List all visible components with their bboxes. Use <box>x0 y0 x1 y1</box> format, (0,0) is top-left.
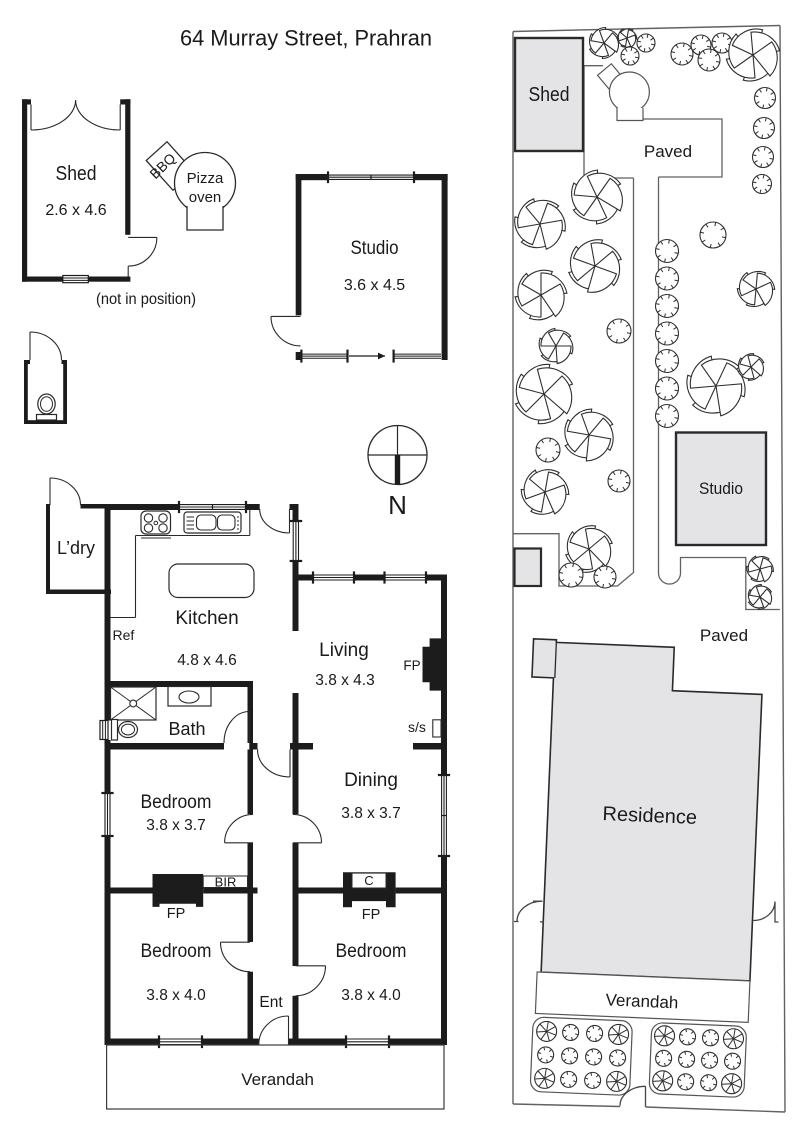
svg-text:Bedroom: Bedroom <box>336 941 407 962</box>
svg-text:Verandah: Verandah <box>241 1070 314 1089</box>
svg-text:(not in position): (not in position) <box>96 291 196 308</box>
svg-text:4.8 x 4.6: 4.8 x 4.6 <box>177 652 236 669</box>
svg-text:3.8 x 3.7: 3.8 x 3.7 <box>146 817 205 834</box>
svg-text:Dining: Dining <box>344 770 398 791</box>
svg-text:Residence: Residence <box>602 803 697 829</box>
svg-text:Living: Living <box>319 640 369 661</box>
svg-text:s/s: s/s <box>408 719 426 735</box>
svg-text:BIR: BIR <box>215 874 237 889</box>
svg-text:Shed: Shed <box>529 84 570 106</box>
svg-text:3.8 x 4.0: 3.8 x 4.0 <box>146 987 206 1004</box>
svg-text:3.8 x 4.0: 3.8 x 4.0 <box>341 987 401 1004</box>
svg-text:3.8 x 4.3: 3.8 x 4.3 <box>315 672 374 689</box>
svg-text:Ref: Ref <box>113 627 135 643</box>
svg-text:Paved: Paved <box>644 142 692 161</box>
svg-text:2.6 x 4.6: 2.6 x 4.6 <box>45 202 106 219</box>
svg-text:Kitchen: Kitchen <box>175 608 238 629</box>
svg-text:3.8 x 3.7: 3.8 x 3.7 <box>341 805 400 822</box>
svg-text:L’dry: L’dry <box>57 538 95 558</box>
svg-text:Bedroom: Bedroom <box>141 792 212 813</box>
svg-text:Studio: Studio <box>699 479 743 498</box>
svg-text:Studio: Studio <box>351 238 399 259</box>
svg-text:FP: FP <box>167 906 186 922</box>
svg-text:Verandah: Verandah <box>605 990 679 1012</box>
svg-text:FP: FP <box>403 658 420 673</box>
svg-text:FP: FP <box>362 907 381 923</box>
svg-text:C: C <box>364 873 373 888</box>
svg-text:N: N <box>388 490 407 520</box>
svg-text:Pizza: Pizza <box>187 170 224 187</box>
svg-text:oven: oven <box>189 189 222 206</box>
svg-text:Ent: Ent <box>259 994 283 1011</box>
svg-text:Bedroom: Bedroom <box>141 941 212 962</box>
svg-text:Shed: Shed <box>56 163 97 185</box>
svg-text:3.6 x 4.5: 3.6 x 4.5 <box>344 277 405 294</box>
svg-text:Paved: Paved <box>700 626 748 645</box>
svg-text:Bath: Bath <box>168 719 205 739</box>
svg-text:64 Murray Street, Prahran: 64 Murray Street, Prahran <box>180 26 432 51</box>
